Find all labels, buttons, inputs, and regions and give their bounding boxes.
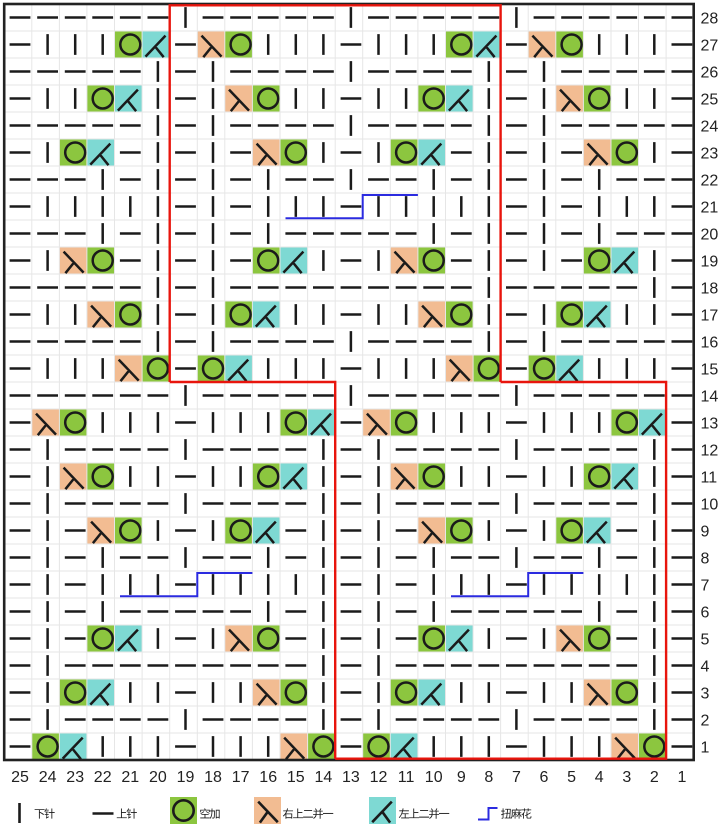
svg-text:9: 9 xyxy=(457,769,466,786)
svg-text:14: 14 xyxy=(315,769,333,786)
svg-text:20: 20 xyxy=(701,226,719,243)
svg-text:24: 24 xyxy=(701,118,719,135)
svg-text:15: 15 xyxy=(287,769,305,786)
svg-text:7: 7 xyxy=(512,769,521,786)
svg-text:17: 17 xyxy=(232,769,250,786)
svg-text:24: 24 xyxy=(39,769,57,786)
svg-text:8: 8 xyxy=(484,769,493,786)
svg-text:13: 13 xyxy=(342,769,360,786)
svg-text:6: 6 xyxy=(701,604,710,621)
svg-text:11: 11 xyxy=(398,769,415,786)
svg-text:27: 27 xyxy=(701,37,719,54)
svg-text:17: 17 xyxy=(701,307,719,324)
svg-text:19: 19 xyxy=(701,253,719,270)
svg-text:8: 8 xyxy=(701,550,710,567)
svg-text:21: 21 xyxy=(701,199,719,216)
svg-text:10: 10 xyxy=(701,496,719,513)
svg-text:22: 22 xyxy=(94,769,112,786)
svg-text:1: 1 xyxy=(701,739,710,756)
svg-text:3: 3 xyxy=(622,769,631,786)
svg-text:10: 10 xyxy=(425,769,443,786)
svg-text:5: 5 xyxy=(567,769,576,786)
svg-text:23: 23 xyxy=(66,769,84,786)
svg-text:16: 16 xyxy=(259,769,277,786)
svg-text:7: 7 xyxy=(701,577,710,594)
svg-text:9: 9 xyxy=(701,523,710,540)
svg-text:18: 18 xyxy=(204,769,222,786)
svg-text:28: 28 xyxy=(701,10,719,27)
svg-text:20: 20 xyxy=(149,769,167,786)
svg-text:6: 6 xyxy=(540,769,549,786)
svg-text:15: 15 xyxy=(701,361,719,378)
svg-text:25: 25 xyxy=(701,91,719,108)
svg-text:25: 25 xyxy=(11,769,29,786)
svg-text:23: 23 xyxy=(701,145,719,162)
svg-text:3: 3 xyxy=(701,685,710,702)
svg-text:21: 21 xyxy=(121,769,139,786)
svg-text:22: 22 xyxy=(701,172,719,189)
svg-text:14: 14 xyxy=(701,388,719,405)
svg-text:12: 12 xyxy=(701,442,719,459)
svg-text:19: 19 xyxy=(177,769,195,786)
svg-text:16: 16 xyxy=(701,334,719,351)
svg-text:4: 4 xyxy=(595,769,604,786)
svg-text:12: 12 xyxy=(370,769,388,786)
svg-text:2: 2 xyxy=(650,769,659,786)
svg-text:1: 1 xyxy=(677,769,686,786)
svg-text:26: 26 xyxy=(701,64,719,81)
svg-text:5: 5 xyxy=(701,631,710,648)
svg-text:11: 11 xyxy=(701,469,718,486)
svg-text:18: 18 xyxy=(701,280,719,297)
svg-text:4: 4 xyxy=(701,658,710,675)
svg-text:13: 13 xyxy=(701,415,719,432)
svg-text:2: 2 xyxy=(701,712,710,729)
